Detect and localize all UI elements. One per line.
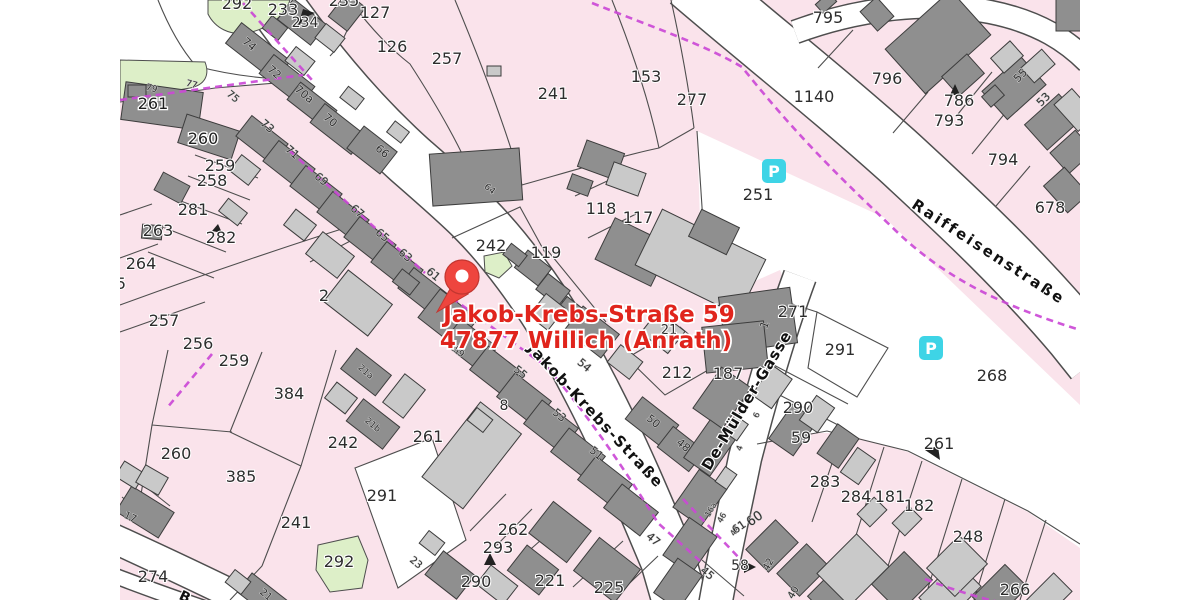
parcel-number-label: 153 bbox=[631, 67, 662, 86]
parcel-number-label: 277 bbox=[677, 90, 708, 109]
parcel-number-label: 182 bbox=[904, 496, 935, 515]
parcel-number-label: 290 bbox=[783, 398, 814, 417]
parcel-number-label: 292 bbox=[324, 552, 355, 571]
parcel-number-label: 263 bbox=[143, 221, 174, 240]
map-container: 2922332342351271262572411532771140795796… bbox=[0, 0, 1200, 600]
parcel-number-label: 256 bbox=[183, 334, 214, 353]
parcel-number-label: 258 bbox=[197, 171, 228, 190]
parcel-number-label: 268 bbox=[977, 366, 1008, 385]
parcel-number-label: 260 bbox=[188, 129, 219, 148]
parking-icon-letter: P bbox=[925, 339, 937, 358]
parcel-number-label: 264 bbox=[126, 254, 157, 273]
parcel-number-label: 242 bbox=[476, 236, 507, 255]
parcel-number-label: 181 bbox=[875, 487, 906, 506]
parcel-number-label: 241 bbox=[538, 84, 569, 103]
parcel-number-label: 282 bbox=[206, 228, 237, 247]
parcel-number-label: 118 bbox=[586, 199, 617, 218]
parcel-number-label: 261 bbox=[138, 94, 169, 113]
parcel-number-label: 242 bbox=[328, 433, 359, 452]
parcel-number-label: 292 bbox=[222, 0, 253, 13]
parcel-number-label: 127 bbox=[360, 3, 391, 22]
parking-icon-letter: P bbox=[768, 162, 780, 181]
parcel-number-label: 259 bbox=[219, 351, 250, 370]
parcel-number-label: 266 bbox=[1000, 580, 1031, 599]
parcel-number-label: 257 bbox=[149, 311, 180, 330]
parcel-number-label: 291 bbox=[367, 486, 398, 505]
parcel-number-label: 126 bbox=[377, 37, 408, 56]
parcel-number-label: 796 bbox=[872, 69, 903, 88]
parcel-number-label: 251 bbox=[743, 185, 774, 204]
parcel-number-label: 221 bbox=[535, 571, 566, 590]
parcel-number-label: 794 bbox=[988, 150, 1019, 169]
parcel-number-label: 290 bbox=[461, 572, 492, 591]
parcel-number-label: 187 bbox=[713, 364, 744, 383]
parcel-number-label: 261 bbox=[924, 434, 955, 453]
parcel-number-label: 212 bbox=[662, 363, 693, 382]
parcel-number-label: 225 bbox=[594, 578, 625, 597]
right-margin bbox=[1080, 0, 1200, 600]
parcel-number-label: 384 bbox=[274, 384, 305, 403]
pin-hole bbox=[456, 270, 469, 283]
parcel-number-label: 795 bbox=[813, 8, 844, 27]
parcel-number-label: 119 bbox=[531, 243, 562, 262]
parcel-number-label: 235 bbox=[329, 0, 360, 10]
parcel-number-label: 257 bbox=[432, 49, 463, 68]
parcel-number-label: 283 bbox=[810, 472, 841, 491]
parcel-number-label: 58 bbox=[731, 558, 749, 574]
parcel-number-label: 241 bbox=[281, 513, 312, 532]
parcel-number-label: 262 bbox=[498, 520, 529, 539]
parcel-number-label: 385 bbox=[226, 467, 257, 486]
parcel-number-label: 117 bbox=[623, 208, 654, 227]
address-label: Jakob-Krebs-Straße 5947877 Willich (Anra… bbox=[440, 302, 735, 354]
parcel-number-label: 261 bbox=[413, 427, 444, 446]
parcel-number-label: 786 bbox=[944, 91, 975, 110]
parcel-number-label: 234 bbox=[292, 15, 319, 31]
parcel-number-label: 293 bbox=[483, 538, 514, 557]
parcel-number-label: 271 bbox=[778, 302, 809, 321]
parcel-number-label: 248 bbox=[953, 527, 984, 546]
parcel-number-label: 2 bbox=[319, 286, 329, 305]
left-margin bbox=[0, 0, 120, 600]
parcel-number-label: 678 bbox=[1035, 198, 1066, 217]
parcel-number-label: 281 bbox=[178, 200, 209, 219]
parcel-number-label: 284 bbox=[841, 487, 872, 506]
parcel-number-label: 274 bbox=[138, 567, 169, 586]
parcel-number-label: 8 bbox=[500, 398, 509, 414]
address-line-2: 47877 Willich (Anrath) bbox=[440, 328, 732, 354]
parcel-number-label: 260 bbox=[161, 444, 192, 463]
parcel-number-label: 1140 bbox=[794, 87, 835, 106]
parcel-number-label: 59 bbox=[791, 428, 811, 447]
parcel-number-label: 793 bbox=[934, 111, 965, 130]
parcel-number-label: 291 bbox=[825, 340, 856, 359]
address-line-1: Jakob-Krebs-Straße 59 bbox=[441, 302, 735, 328]
map-canvas[interactable]: 2922332342351271262572411532771140795796… bbox=[0, 0, 1200, 600]
